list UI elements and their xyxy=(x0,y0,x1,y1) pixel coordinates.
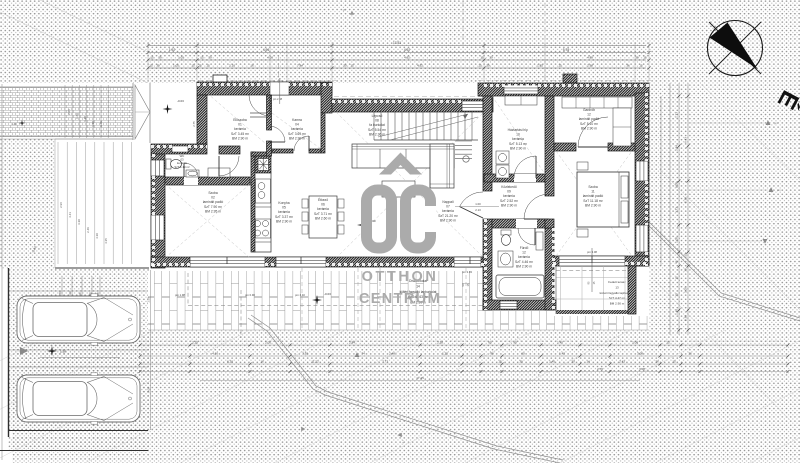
svg-text:SzT 3.69 m²: SzT 3.69 m² xyxy=(288,132,307,136)
svg-text:11.22: 11.22 xyxy=(311,360,319,364)
svg-text:1.00: 1.00 xyxy=(675,237,679,243)
svg-text:BM 2.90 m: BM 2.90 m xyxy=(440,218,456,222)
svg-text:4.16: 4.16 xyxy=(212,352,218,356)
svg-text:Kamra: Kamra xyxy=(292,118,302,122)
svg-text:kerámia: kerámia xyxy=(512,137,524,141)
svg-text:4.35: 4.35 xyxy=(104,238,108,244)
svg-text:SzT 7.90 m²: SzT 7.90 m² xyxy=(204,205,223,209)
svg-text:2.40: 2.40 xyxy=(389,352,395,356)
svg-text:BM 2.90 m: BM 2.90 m xyxy=(232,136,248,140)
svg-text:15: 15 xyxy=(350,64,354,68)
svg-text:SzT 1.19 m²: SzT 1.19 m² xyxy=(174,165,189,169)
svg-text:1.43: 1.43 xyxy=(559,352,565,356)
svg-text:30: 30 xyxy=(684,268,688,272)
svg-text:SzT 4.46 m²: SzT 4.46 m² xyxy=(515,260,534,264)
svg-text:pm: pm xyxy=(774,122,778,125)
svg-text:2.10: 2.10 xyxy=(229,64,235,68)
svg-text:kerámia: kerámia xyxy=(234,127,246,131)
svg-text:BM 2.90 m: BM 2.90 m xyxy=(581,126,597,130)
svg-text:Háztartási hly.: Háztartási hly. xyxy=(508,128,529,132)
svg-text:SzT 3.37 m²: SzT 3.37 m² xyxy=(275,215,294,219)
svg-text:09: 09 xyxy=(507,190,511,194)
svg-text:OTTHON: OTTHON xyxy=(362,269,439,285)
svg-text:17.45: 17.45 xyxy=(416,376,424,380)
svg-text:10: 10 xyxy=(516,133,520,137)
svg-text:BM 2.90 m: BM 2.90 m xyxy=(276,219,292,223)
svg-text:05: 05 xyxy=(282,206,286,210)
svg-text:Szoba: Szoba xyxy=(208,191,218,195)
svg-text:30: 30 xyxy=(343,64,347,68)
svg-text:2.98: 2.98 xyxy=(587,64,593,68)
svg-text:Étkező: Étkező xyxy=(318,197,328,202)
svg-text:SzT 4.47 m²: SzT 4.47 m² xyxy=(609,296,625,300)
svg-text:39: 39 xyxy=(156,64,160,68)
svg-text:4.92: 4.92 xyxy=(404,48,410,52)
svg-text:BM 2.60 m: BM 2.60 m xyxy=(315,216,331,220)
svg-text:74: 74 xyxy=(361,352,365,356)
svg-text:30: 30 xyxy=(675,293,679,297)
svg-text:39: 39 xyxy=(486,64,490,68)
svg-text:1.85: 1.85 xyxy=(537,64,543,68)
svg-text:1.49: 1.49 xyxy=(99,121,103,127)
svg-text:12: 12 xyxy=(587,113,591,117)
svg-text:SzT 3.45 m²: SzT 3.45 m² xyxy=(231,132,250,136)
svg-text:60: 60 xyxy=(521,352,525,356)
svg-text:15: 15 xyxy=(200,56,204,60)
svg-text:1.05: 1.05 xyxy=(684,287,688,293)
svg-text:2.38: 2.38 xyxy=(437,341,443,345)
svg-text:laminált padló: laminált padló xyxy=(583,194,604,198)
svg-text:1.23: 1.23 xyxy=(442,352,448,356)
svg-text:1.92: 1.92 xyxy=(169,48,175,52)
svg-text:BM 2.90 m: BM 2.90 m xyxy=(501,203,517,207)
svg-text:pm: pm xyxy=(777,189,781,192)
svg-text:5.30: 5.30 xyxy=(684,197,688,203)
svg-text:14: 14 xyxy=(586,360,590,364)
svg-text:pm 1.98: pm 1.98 xyxy=(175,293,185,297)
svg-text:1.40: 1.40 xyxy=(11,122,17,126)
svg-text:6.08: 6.08 xyxy=(675,182,679,188)
svg-text:04: 04 xyxy=(295,123,299,127)
svg-text:12: 12 xyxy=(522,251,526,255)
svg-text:Konyha: Konyha xyxy=(278,201,289,205)
svg-text:15: 15 xyxy=(478,64,482,68)
svg-text:2.84: 2.84 xyxy=(349,341,355,345)
svg-text:15: 15 xyxy=(150,56,154,60)
svg-text:18: 18 xyxy=(78,292,82,296)
svg-text:2.75: 2.75 xyxy=(192,121,196,127)
svg-text:2.05: 2.05 xyxy=(67,109,71,115)
svg-text:-0.03: -0.03 xyxy=(177,99,184,103)
svg-text:11: 11 xyxy=(591,190,595,194)
svg-text:laminált padló: laminált padló xyxy=(579,117,600,121)
svg-text:SzT 21.20 m²: SzT 21.20 m² xyxy=(438,214,459,218)
svg-text:SzT 5.54 m²: SzT 5.54 m² xyxy=(368,128,387,132)
svg-text:01: 01 xyxy=(238,123,242,127)
svg-text:SzT 5.13 m²: SzT 5.13 m² xyxy=(509,142,528,146)
svg-text:1.00: 1.00 xyxy=(475,202,481,206)
svg-text:2.96: 2.96 xyxy=(59,202,63,208)
svg-text:15: 15 xyxy=(675,276,679,280)
svg-text:1.40: 1.40 xyxy=(675,309,679,315)
svg-text:16: 16 xyxy=(260,360,264,364)
svg-text:kerámia: kerámia xyxy=(291,127,303,131)
svg-text:kerámia: kerámia xyxy=(317,207,329,211)
svg-text:2.43: 2.43 xyxy=(619,360,625,364)
svg-text:Lépcső: Lépcső xyxy=(372,114,383,118)
svg-text:2.70: 2.70 xyxy=(597,367,603,371)
svg-text:08: 08 xyxy=(375,119,379,123)
svg-text:4.92: 4.92 xyxy=(417,64,423,68)
svg-text:5.30: 5.30 xyxy=(684,315,688,321)
svg-text:13: 13 xyxy=(615,285,619,289)
svg-text:15: 15 xyxy=(639,64,643,68)
svg-text:SzT 11.18 m²: SzT 11.18 m² xyxy=(583,199,603,203)
svg-text:1.40: 1.40 xyxy=(549,360,555,364)
svg-text:BM 2.90 m: BM 2.90 m xyxy=(610,302,625,306)
svg-text:7.30: 7.30 xyxy=(302,352,308,356)
svg-text:SzT 5.10 m²: SzT 5.10 m² xyxy=(580,122,599,126)
svg-text:39: 39 xyxy=(208,56,212,60)
svg-text:6.43: 6.43 xyxy=(684,137,688,143)
svg-text:16: 16 xyxy=(250,64,254,68)
svg-text:kerámia: kerámia xyxy=(442,209,454,213)
svg-text:6.20: 6.20 xyxy=(227,360,233,364)
svg-text:-0.03: -0.03 xyxy=(324,292,331,296)
svg-text:1.50: 1.50 xyxy=(147,297,151,303)
svg-text:2.08: 2.08 xyxy=(632,341,638,345)
svg-text:5.00: 5.00 xyxy=(147,387,151,393)
svg-text:kerámia: kerámia xyxy=(518,255,530,259)
svg-text:90: 90 xyxy=(513,341,517,345)
svg-text:pm 2.03: pm 2.03 xyxy=(462,270,472,274)
svg-text:90: 90 xyxy=(490,352,494,356)
svg-text:39: 39 xyxy=(489,56,493,60)
svg-text:7.77: 7.77 xyxy=(382,360,388,364)
svg-text:15: 15 xyxy=(672,360,676,364)
svg-text:36: 36 xyxy=(655,360,659,364)
svg-text:4.30: 4.30 xyxy=(95,233,99,239)
svg-text:1.05: 1.05 xyxy=(178,56,184,60)
svg-text:3.73: 3.73 xyxy=(675,207,679,213)
svg-text:25: 25 xyxy=(198,64,202,68)
svg-text:Szoba: Szoba xyxy=(588,185,598,189)
svg-text:kerámia: kerámia xyxy=(278,210,290,214)
svg-text:39: 39 xyxy=(635,56,639,60)
svg-text:2.49: 2.49 xyxy=(86,227,90,233)
svg-text:3.08: 3.08 xyxy=(639,367,645,371)
svg-text:4.96: 4.96 xyxy=(263,48,269,52)
svg-text:Előszoba: Előszoba xyxy=(233,118,247,122)
svg-text:5.78: 5.78 xyxy=(563,48,569,52)
svg-text:36: 36 xyxy=(688,352,692,356)
svg-text:14: 14 xyxy=(416,284,420,288)
svg-text:1.38: 1.38 xyxy=(91,121,95,127)
svg-text:4.41: 4.41 xyxy=(68,212,72,218)
svg-text:Gardrób: Gardrób xyxy=(583,108,595,112)
svg-text:laminált padló: laminált padló xyxy=(203,200,224,204)
svg-text:BM 2.90 m: BM 2.90 m xyxy=(510,146,526,150)
svg-text:15: 15 xyxy=(206,64,210,68)
svg-text:pm 0.90: pm 0.90 xyxy=(245,293,255,297)
svg-text:1.73: 1.73 xyxy=(675,112,679,118)
svg-text:pin 2.38: pin 2.38 xyxy=(273,97,283,101)
svg-text:2.84: 2.84 xyxy=(675,145,679,151)
svg-text:07: 07 xyxy=(446,205,450,209)
svg-text:15: 15 xyxy=(666,341,670,345)
svg-text:BM 2.90 m: BM 2.90 m xyxy=(585,203,601,207)
svg-text:SzT 3.71 m²: SzT 3.71 m² xyxy=(314,212,333,216)
svg-text:3.30: 3.30 xyxy=(77,219,81,225)
svg-text:1.60: 1.60 xyxy=(75,113,79,119)
svg-text:Nappali: Nappali xyxy=(442,200,453,204)
svg-text:BM 2.95 m: BM 2.95 m xyxy=(205,209,221,213)
svg-text:BM 2.36 m: BM 2.36 m xyxy=(369,132,385,136)
svg-text:2.13: 2.13 xyxy=(475,208,481,212)
svg-text:3.08: 3.08 xyxy=(637,352,643,356)
svg-text:kerámia: kerámia xyxy=(503,194,515,198)
svg-text:4.92: 4.92 xyxy=(404,56,410,60)
svg-text:7.84: 7.84 xyxy=(297,64,303,68)
svg-text:Fürdő: Fürdő xyxy=(520,246,529,250)
svg-text:BM 2.90 m: BM 2.90 m xyxy=(289,136,305,140)
svg-text:60: 60 xyxy=(488,341,492,345)
svg-text:fa burkolat: fa burkolat xyxy=(369,123,384,127)
svg-text:15: 15 xyxy=(480,56,484,60)
svg-text:30: 30 xyxy=(519,360,523,364)
svg-text:45: 45 xyxy=(675,260,679,264)
svg-text:1.40: 1.40 xyxy=(83,116,87,122)
svg-text:1.05: 1.05 xyxy=(173,64,179,68)
svg-text:15: 15 xyxy=(558,64,562,68)
svg-text:15: 15 xyxy=(191,64,195,68)
svg-text:4.89: 4.89 xyxy=(587,56,593,60)
svg-text:15: 15 xyxy=(149,64,153,68)
svg-text:17.51: 17.51 xyxy=(393,41,401,45)
svg-text:36: 36 xyxy=(626,64,630,68)
svg-text:02: 02 xyxy=(211,196,215,200)
svg-text:-1.7: -1.7 xyxy=(401,439,405,444)
svg-text:2.25: 2.25 xyxy=(192,341,198,345)
svg-text:pm 2.40: pm 2.40 xyxy=(295,293,305,297)
svg-text:15: 15 xyxy=(498,360,502,364)
svg-text:2.00: 2.00 xyxy=(265,341,271,345)
svg-text:Fedett terasz: Fedett terasz xyxy=(608,280,626,284)
svg-text:SzT 2.52 m²: SzT 2.52 m² xyxy=(500,199,519,203)
svg-text:39: 39 xyxy=(158,56,162,60)
svg-text:Közlekedő: Közlekedő xyxy=(501,185,517,189)
svg-text:BM 2.90 m: BM 2.90 m xyxy=(516,264,532,268)
svg-text:1.40: 1.40 xyxy=(557,341,563,345)
svg-text:CENTRUM: CENTRUM xyxy=(359,291,441,307)
svg-text:15: 15 xyxy=(684,253,688,257)
svg-text:15: 15 xyxy=(643,56,647,60)
svg-text:30: 30 xyxy=(571,360,575,364)
svg-text:06: 06 xyxy=(321,203,325,207)
